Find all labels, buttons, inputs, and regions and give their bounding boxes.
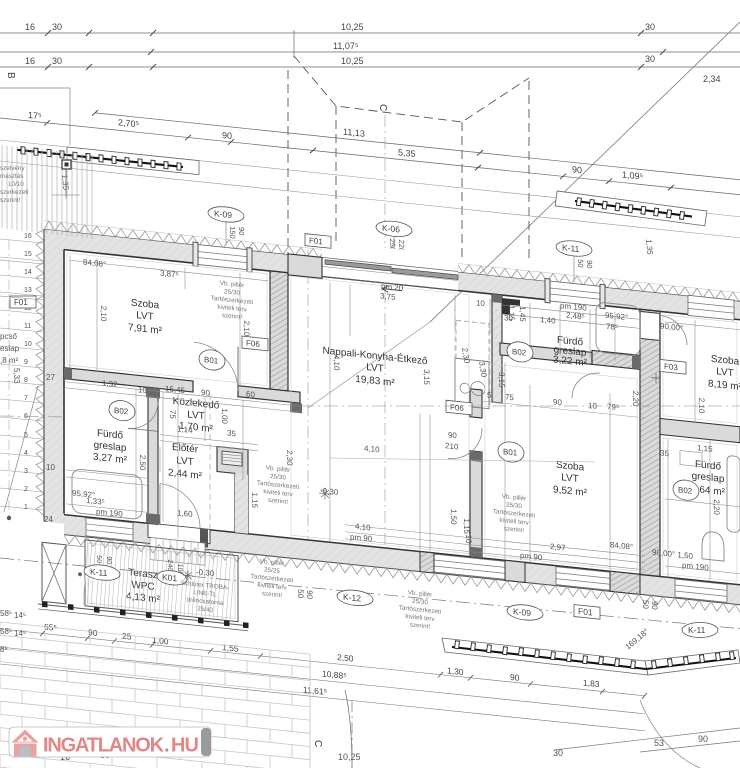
- svg-text:10: 10: [476, 298, 485, 308]
- svg-text:3,15: 3,15: [422, 369, 431, 386]
- svg-text:14⁵: 14⁵: [14, 629, 26, 638]
- svg-text:C: C: [377, 104, 388, 111]
- svg-text:58⁵: 58⁵: [0, 627, 12, 636]
- svg-text:9,52 m²: 9,52 m²: [553, 484, 588, 499]
- svg-text:szerint!: szerint!: [262, 590, 282, 599]
- svg-text:240: 240: [166, 559, 173, 571]
- svg-text:F03: F03: [664, 362, 678, 372]
- svg-text:greslap: greslap: [692, 471, 725, 485]
- svg-text:1,45: 1,45: [518, 306, 527, 323]
- svg-text:2,50: 2,50: [337, 652, 354, 664]
- svg-text:szerint!: szerint!: [222, 312, 242, 321]
- svg-text:16: 16: [24, 233, 32, 240]
- svg-text:1,14: 1,14: [177, 424, 193, 435]
- svg-text:F06: F06: [450, 403, 464, 413]
- svg-text:90: 90: [650, 600, 659, 610]
- svg-text:1,83: 1,83: [583, 677, 600, 689]
- svg-text:4,10: 4,10: [332, 354, 341, 371]
- svg-text:90: 90: [510, 672, 520, 683]
- svg-text:2,48⁵: 2,48⁵: [566, 311, 585, 322]
- svg-text:60: 60: [246, 390, 255, 400]
- svg-text:90: 90: [88, 627, 98, 638]
- svg-text:F01: F01: [14, 298, 28, 307]
- svg-text:K-11: K-11: [90, 566, 108, 578]
- svg-text:F06: F06: [246, 339, 260, 349]
- svg-text:84,08°: 84,08°: [610, 540, 633, 551]
- svg-text:5: 5: [487, 391, 492, 400]
- svg-text:90: 90: [222, 130, 232, 141]
- svg-text:90: 90: [201, 388, 210, 398]
- svg-text:35: 35: [227, 429, 236, 439]
- svg-text:2,34: 2,34: [703, 74, 721, 84]
- svg-text:11: 11: [24, 323, 31, 330]
- svg-text:90: 90: [105, 556, 112, 565]
- svg-text:B02: B02: [678, 485, 693, 496]
- svg-text:szerint!: szerint!: [504, 525, 524, 534]
- svg-text:75: 75: [168, 409, 177, 419]
- svg-text:eslap: eslap: [0, 344, 20, 353]
- svg-text:7,91 m²: 7,91 m²: [128, 322, 163, 337]
- svg-text:50: 50: [576, 259, 585, 268]
- svg-text:2,44 m²: 2,44 m²: [168, 467, 203, 482]
- svg-text:pcső: pcső: [0, 332, 17, 341]
- svg-text:9: 9: [24, 359, 28, 366]
- svg-text:10,25: 10,25: [341, 56, 364, 66]
- svg-text:13: 13: [24, 287, 32, 294]
- svg-text:LVT: LVT: [366, 362, 384, 375]
- svg-text:1,55: 1,55: [222, 642, 239, 654]
- svg-text:szerint!: szerint!: [0, 197, 21, 204]
- svg-text:1,35: 1,35: [644, 239, 654, 255]
- svg-text:pm 90: pm 90: [350, 532, 373, 543]
- svg-text:pm 190: pm 190: [682, 561, 709, 573]
- svg-text:11,13: 11,13: [343, 127, 365, 139]
- svg-text:58⁵: 58⁵: [0, 609, 12, 618]
- svg-text:Szoba: Szoba: [131, 298, 160, 312]
- svg-text:LVT: LVT: [561, 472, 579, 485]
- svg-text:5: 5: [24, 432, 28, 439]
- svg-text:K-11: K-11: [688, 625, 706, 635]
- svg-text:F01: F01: [578, 606, 593, 618]
- svg-text:27: 27: [46, 373, 55, 382]
- svg-text:1,32: 1,32: [102, 379, 118, 390]
- svg-text:B02: B02: [114, 406, 129, 417]
- svg-text:75: 75: [505, 392, 514, 402]
- svg-text:10,25: 10,25: [338, 752, 361, 762]
- svg-text:HU: HU: [171, 735, 198, 757]
- svg-text:1,40: 1,40: [540, 315, 556, 326]
- svg-text:K-11: K-11: [562, 242, 580, 254]
- svg-text:3,75: 3,75: [380, 291, 396, 302]
- svg-text:2,30: 2,30: [460, 347, 472, 364]
- svg-text:INGATLANOK: INGATLANOK: [43, 735, 165, 757]
- svg-text:169,18°: 169,18°: [624, 627, 651, 652]
- svg-text:2,10: 2,10: [697, 397, 706, 414]
- svg-text:19,83 m²: 19,83 m²: [355, 374, 395, 389]
- svg-text:14: 14: [24, 269, 32, 276]
- svg-text:C: C: [312, 740, 323, 747]
- svg-text:LVT: LVT: [136, 310, 154, 323]
- svg-text:90: 90: [448, 430, 457, 440]
- svg-text:1,30: 1,30: [447, 665, 464, 677]
- svg-text:50: 50: [296, 589, 305, 599]
- svg-text:8: 8: [24, 377, 28, 384]
- svg-text:24: 24: [44, 515, 53, 524]
- svg-text:3: 3: [24, 468, 28, 475]
- svg-text:.: .: [164, 735, 170, 757]
- svg-text:50: 50: [95, 555, 102, 564]
- svg-text:16: 16: [25, 22, 35, 32]
- svg-text:2,97: 2,97: [550, 542, 566, 553]
- svg-text:2,10: 2,10: [242, 320, 251, 337]
- svg-text:1,09⁵: 1,09⁵: [622, 170, 643, 182]
- svg-text:90: 90: [237, 227, 246, 236]
- svg-text:B01: B01: [503, 447, 518, 458]
- svg-text:szerint!: szerint!: [410, 622, 430, 631]
- svg-text:szerkezeti: szerkezeti: [0, 189, 28, 196]
- svg-text:LVT: LVT: [716, 366, 734, 379]
- svg-text:7: 7: [24, 395, 28, 402]
- svg-text:210: 210: [445, 441, 459, 451]
- svg-text:10: 10: [138, 385, 147, 395]
- svg-text:30: 30: [645, 22, 655, 32]
- svg-text:95,92°: 95,92°: [605, 311, 628, 322]
- svg-text:-0,30: -0,30: [196, 567, 215, 578]
- svg-text:4,10: 4,10: [364, 444, 380, 455]
- svg-text:10,25: 10,25: [341, 22, 364, 32]
- svg-text:1,15: 1,15: [462, 518, 471, 535]
- svg-text:K-06: K-06: [382, 223, 400, 235]
- svg-text:pm 90: pm 90: [520, 551, 543, 562]
- svg-text:,8 m²: ,8 m²: [0, 356, 19, 365]
- svg-text:10: 10: [464, 534, 473, 544]
- svg-text:16: 16: [25, 56, 35, 66]
- svg-text:K-12: K-12: [343, 592, 361, 604]
- svg-text:8,19 m²: 8,19 m²: [708, 378, 740, 393]
- svg-text:K-09: K-09: [214, 208, 232, 220]
- svg-text:1,15: 1,15: [507, 305, 516, 322]
- svg-text:Előtér: Előtér: [172, 442, 199, 456]
- svg-text:4,10: 4,10: [355, 522, 371, 533]
- svg-text:5,35: 5,35: [398, 147, 416, 159]
- svg-text:2,20: 2,20: [712, 499, 721, 516]
- svg-text:1,35: 1,35: [60, 174, 70, 190]
- svg-text:35: 35: [660, 448, 669, 458]
- svg-text:90: 90: [585, 260, 594, 269]
- svg-text:14⁵: 14⁵: [14, 611, 26, 620]
- svg-text:1,60: 1,60: [177, 508, 193, 519]
- svg-text:78⁵: 78⁵: [606, 322, 618, 332]
- svg-text:84,08°: 84,08°: [83, 258, 106, 269]
- svg-text:2,20: 2,20: [631, 390, 640, 407]
- svg-text:90: 90: [698, 734, 708, 744]
- svg-text:1,15: 1,15: [697, 443, 713, 454]
- svg-text:150: 150: [228, 226, 237, 239]
- svg-text:masztás: masztás: [0, 173, 23, 180]
- svg-text:10: 10: [24, 341, 32, 348]
- svg-text:3,30: 3,30: [477, 361, 489, 378]
- svg-text:6: 6: [24, 413, 28, 420]
- svg-text:4: 4: [24, 450, 28, 457]
- svg-text:90: 90: [305, 590, 314, 600]
- svg-text:3,27 m²: 3,27 m²: [93, 452, 128, 467]
- svg-text:B: B: [5, 72, 16, 79]
- svg-text:10: 10: [46, 463, 55, 472]
- svg-text:1,33⁵: 1,33⁵: [86, 496, 105, 507]
- svg-text:1: 1: [24, 504, 28, 511]
- svg-text:50: 50: [641, 599, 650, 609]
- svg-text:2: 2: [24, 486, 28, 493]
- svg-text:5,33: 5,33: [12, 368, 21, 384]
- svg-text:3,22 m²: 3,22 m²: [553, 354, 588, 369]
- svg-text:3,87⁵: 3,87⁵: [160, 269, 179, 280]
- svg-text:17⁵: 17⁵: [28, 110, 42, 121]
- svg-text:1,50: 1,50: [449, 509, 458, 526]
- svg-text:8⁵: 8⁵: [0, 645, 8, 654]
- svg-text:3,15: 3,15: [497, 372, 506, 389]
- svg-text:pm 190: pm 190: [96, 507, 123, 519]
- svg-text:90: 90: [553, 397, 562, 407]
- svg-text:F01: F01: [309, 236, 323, 246]
- svg-text:2,70⁵: 2,70⁵: [118, 117, 139, 129]
- svg-text:90,00°: 90,00°: [660, 321, 683, 332]
- svg-text:10/10: 10/10: [8, 181, 24, 188]
- svg-text:K-09: K-09: [513, 606, 531, 618]
- svg-text:szerint!: szerint!: [268, 497, 288, 506]
- svg-text:1,00: 1,00: [220, 408, 229, 425]
- svg-text:30: 30: [52, 22, 62, 32]
- svg-text:11,07⁵: 11,07⁵: [333, 41, 359, 51]
- svg-text:Szoba: Szoba: [711, 354, 740, 368]
- svg-text:25: 25: [122, 631, 132, 642]
- svg-text:79⁵: 79⁵: [607, 402, 619, 412]
- svg-text:LVT: LVT: [176, 455, 194, 468]
- svg-text:15,45: 15,45: [165, 384, 186, 395]
- svg-text:K01: K01: [162, 572, 177, 584]
- svg-text:90: 90: [572, 164, 582, 175]
- svg-text:B01: B01: [204, 355, 219, 366]
- svg-text:1,15: 1,15: [250, 492, 259, 509]
- svg-text:15: 15: [24, 251, 32, 258]
- svg-text:LVT: LVT: [187, 409, 205, 422]
- svg-text:10,88⁵: 10,88⁵: [322, 668, 347, 681]
- svg-text:szelvény: szelvény: [0, 165, 25, 172]
- svg-text:B02: B02: [512, 347, 527, 358]
- svg-text:2,30: 2,30: [285, 450, 294, 467]
- svg-text:2,10: 2,10: [99, 305, 108, 322]
- svg-text:1,00: 1,00: [152, 635, 169, 647]
- svg-text:30: 30: [52, 56, 62, 66]
- svg-text:30: 30: [645, 54, 655, 64]
- svg-text:2,50: 2,50: [138, 454, 147, 471]
- svg-text:11,61⁵: 11,61⁵: [303, 684, 327, 696]
- svg-text:25/40: 25/40: [197, 605, 213, 614]
